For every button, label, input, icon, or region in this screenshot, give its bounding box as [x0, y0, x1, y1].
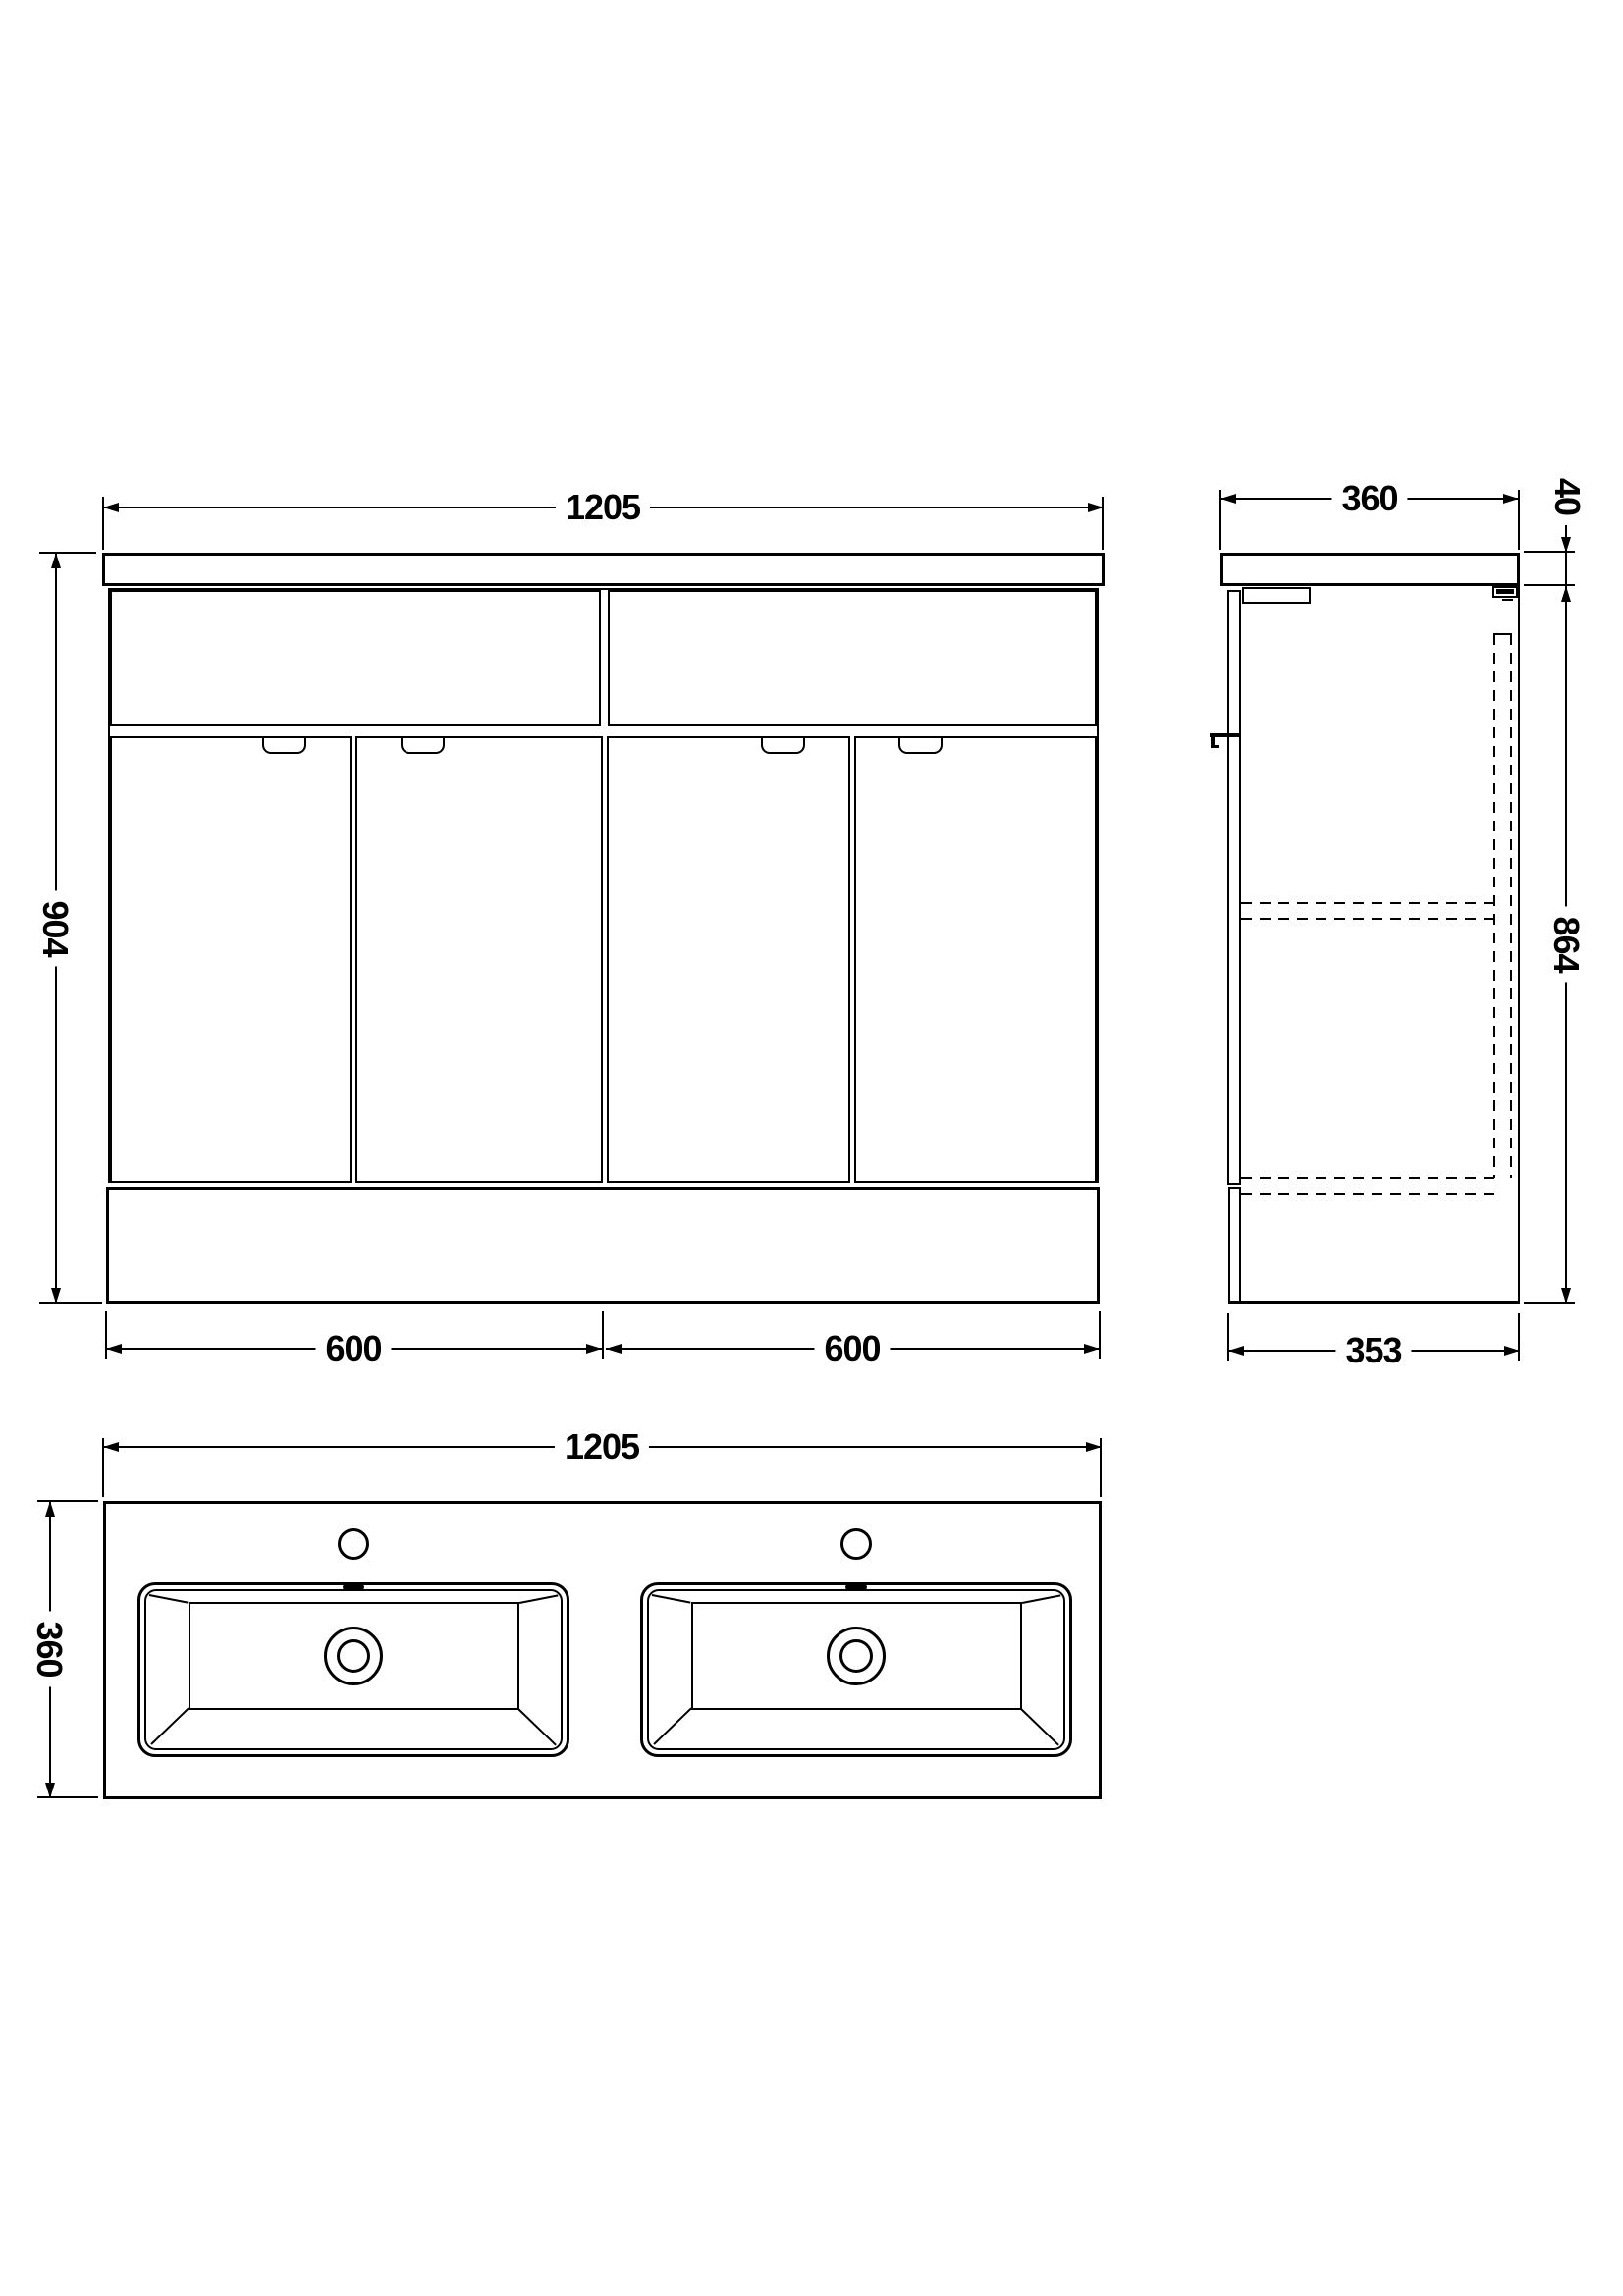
arrowhead [1084, 1344, 1100, 1354]
cabinet-height-dimension-label: 864 [1546, 906, 1586, 982]
cabinet-base-line [1228, 1301, 1520, 1304]
door-profile-side [1227, 590, 1241, 1185]
door-panel-3 [607, 736, 850, 1183]
worktop-side [1220, 553, 1520, 586]
arrowhead [1561, 537, 1571, 553]
drawer-front-left [110, 590, 601, 726]
tap-hole-left [338, 1528, 369, 1560]
bottom-panel-hidden-line [1241, 1177, 1498, 1179]
arrowhead [1504, 1346, 1520, 1356]
arrowhead [45, 1783, 55, 1798]
waste-drain-inner-right [839, 1639, 873, 1673]
arrowhead [606, 1344, 622, 1354]
arrowhead [586, 1344, 602, 1354]
arrowhead [51, 553, 61, 568]
front-width-dimension-label: 1205 [556, 488, 650, 527]
shelf-hidden-line [1241, 918, 1495, 920]
arrowhead [1503, 494, 1519, 504]
drawer-runner-block [1242, 587, 1311, 604]
extension-line [39, 1302, 102, 1304]
plan-depth-dimension-label: 360 [29, 1611, 69, 1686]
right-section-dimension-label: 600 [814, 1329, 890, 1368]
back-panel-hidden-line [1493, 634, 1495, 1178]
arrowhead [1561, 1288, 1571, 1304]
door-panel-1 [110, 736, 352, 1183]
door-handle-recess-1 [262, 738, 306, 754]
arrowhead [1228, 1346, 1244, 1356]
extension-line [39, 552, 96, 554]
arrowhead [45, 1501, 55, 1517]
extension-line [602, 1311, 604, 1359]
back-rail-hidden-edge [1502, 599, 1515, 601]
shelf-hidden-line [1241, 902, 1495, 904]
technical-drawing-canvas: 1205 904 600 600 [0, 0, 1623, 2296]
door-handle-recess-4 [898, 738, 943, 754]
back-rail-bracket [1496, 589, 1514, 594]
arrowhead [1086, 1442, 1102, 1452]
front-height-dimension-label: 904 [35, 890, 75, 966]
dimension-line-gap [1565, 553, 1567, 586]
overflow-slot-left [343, 1584, 364, 1590]
back-panel-hidden-line [1510, 634, 1512, 1178]
bottom-panel-hidden-line [1241, 1193, 1498, 1195]
door-panel-4 [854, 736, 1097, 1183]
arrowhead [106, 1344, 122, 1354]
plinth-profile-side [1228, 1187, 1241, 1304]
handle-profile-foot [1211, 745, 1219, 748]
arrowhead [1220, 494, 1236, 504]
door-panel-2 [355, 736, 603, 1183]
cabinet-back-edge [1518, 586, 1520, 1304]
drawer-front-right [608, 590, 1097, 726]
waste-drain-inner-left [337, 1639, 370, 1673]
plan-width-dimension-label: 1205 [555, 1427, 649, 1467]
tap-hole-right [840, 1528, 872, 1560]
arrowhead [1561, 586, 1571, 602]
worktop-thickness-dimension-label: 40 [1547, 468, 1587, 525]
arrowhead [103, 503, 119, 512]
side-depth-dimension-label: 360 [1331, 479, 1407, 518]
plinth-front [106, 1187, 1100, 1304]
door-handle-recess-2 [401, 738, 445, 754]
door-handle-recess-3 [761, 738, 805, 754]
arrowhead [51, 1288, 61, 1304]
arrowhead [103, 1442, 119, 1452]
base-depth-dimension-label: 353 [1335, 1331, 1411, 1370]
overflow-slot-right [845, 1584, 867, 1590]
arrowhead [1088, 503, 1104, 512]
left-section-dimension-label: 600 [315, 1329, 391, 1368]
worktop-front [102, 553, 1105, 586]
